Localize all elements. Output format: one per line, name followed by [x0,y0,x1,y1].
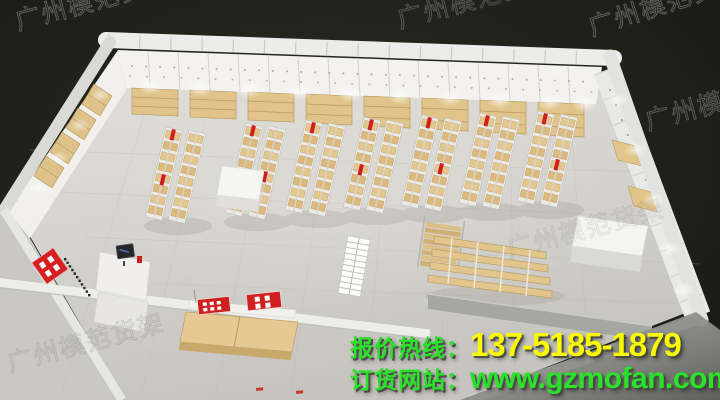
watermark-text: 广州模范货架 [12,0,176,36]
hanging-sign-left [197,296,230,314]
watermark-text: 广州模范货架 [394,0,558,34]
cashier-red-accent [137,256,142,263]
white-display-block [216,166,264,212]
store-render-screenshot: 广州模范货架 广州模范货架 广州模范货架 广州模范货架 广州模范货架 [0,0,720,400]
watermark-text: 广州模范货架 [642,67,720,136]
watermark-text: 广州模范货架 [585,0,720,42]
hanging-sign-right [246,291,281,310]
store-render: 广州模范货架 广州模范货架 广州模范货架 广州模范货架 广州模范货架 [0,0,720,400]
